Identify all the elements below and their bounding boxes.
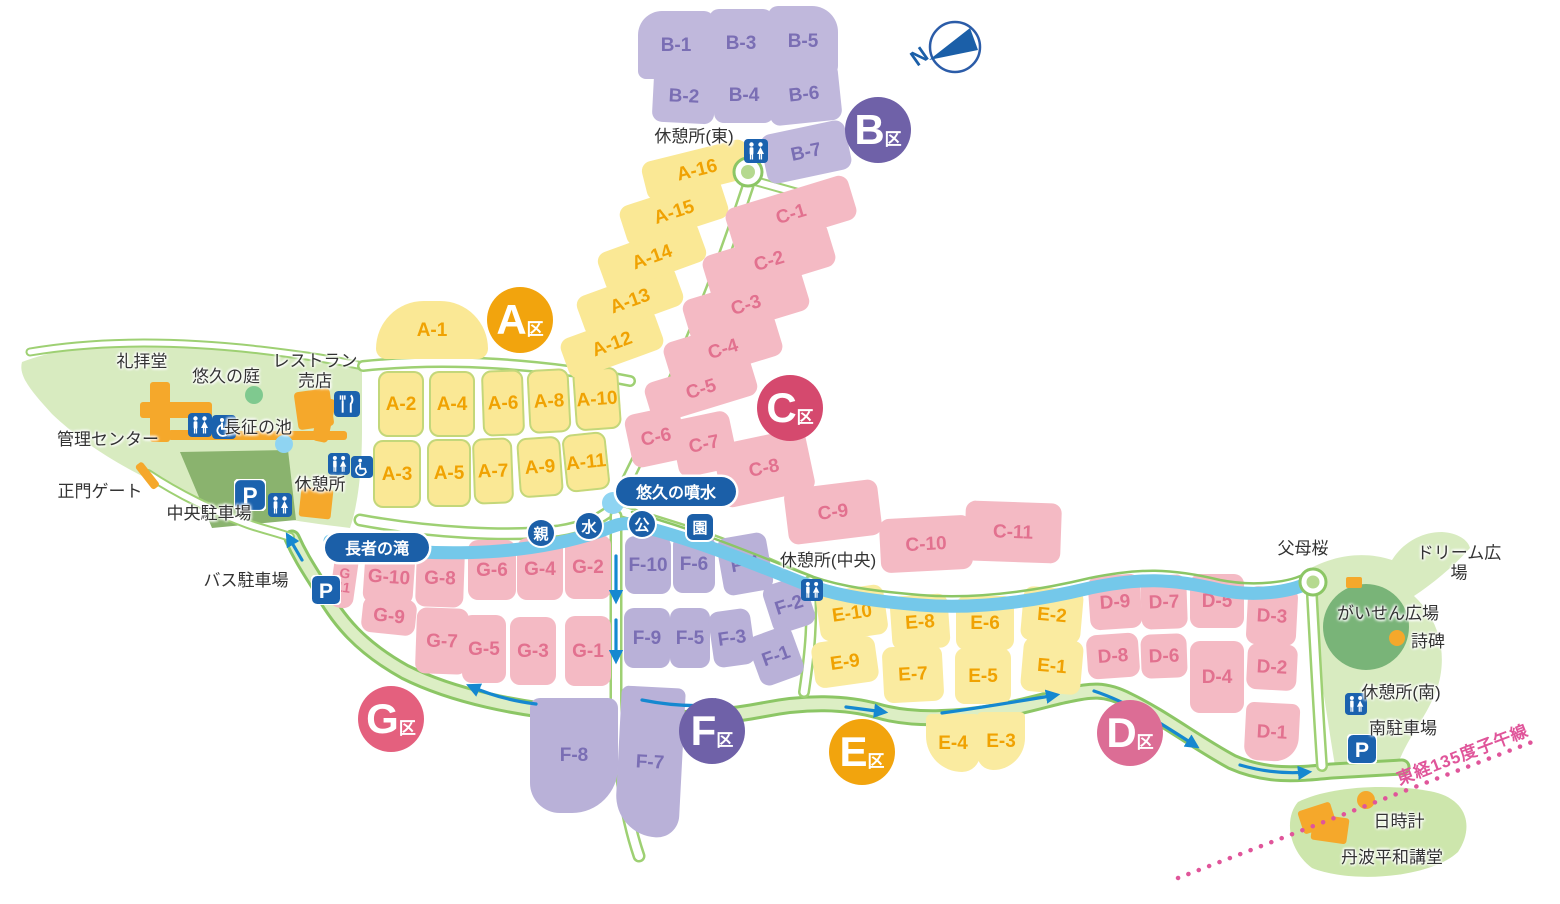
- plot-g-5: G-5: [462, 615, 506, 683]
- zone-badge-suffix: 区: [527, 315, 544, 340]
- plot-f-6: F-6: [673, 535, 715, 593]
- plot-e-7: E-7: [882, 644, 945, 703]
- park-char-園: 園: [687, 514, 713, 540]
- chosei-pond-label: 長征の池: [224, 418, 292, 438]
- plot-d-1: D-1: [1244, 702, 1301, 763]
- rest-area-label: 休憩所: [295, 475, 346, 495]
- zone-badge-letter: F: [691, 710, 717, 752]
- poem-monument-label: 詩碑: [1411, 632, 1445, 652]
- plot-c-11: C-11: [964, 500, 1062, 563]
- fubo-sakura-label: 父母桜: [1278, 539, 1329, 559]
- gaisen-square: [1346, 577, 1362, 588]
- plot-g-4: G-4: [517, 538, 563, 600]
- main-gate-label: 正門ゲート: [58, 482, 143, 502]
- plot-e-6: E-6: [956, 596, 1014, 650]
- plot-a-11: A-11: [561, 431, 611, 493]
- svg-text:P: P: [319, 579, 333, 603]
- plot-g-6: G-6: [468, 540, 516, 600]
- zone-badge-b: B区: [845, 97, 911, 163]
- svg-text:P: P: [1355, 738, 1369, 762]
- plot-d-2: D-2: [1246, 643, 1298, 692]
- zone-badge-suffix: 区: [868, 747, 885, 772]
- restaurant-shop-label: レストラン 売店: [273, 351, 358, 390]
- gaisen-plaza-circle: [1323, 584, 1409, 670]
- sundial-dot: [1357, 791, 1375, 809]
- plot-e-8: E-8: [889, 593, 951, 651]
- plot-f-3: F-3: [707, 607, 756, 668]
- plot-b-4: B-4: [714, 67, 774, 123]
- zone-badge-suffix: 区: [399, 714, 416, 739]
- plot-e-1: E-1: [1020, 636, 1084, 695]
- south-parking-label: 南駐車場: [1369, 719, 1437, 739]
- zone-badge-letter: A: [496, 299, 526, 341]
- plot-d-8: D-8: [1086, 632, 1141, 680]
- zone-badge-letter: E: [839, 731, 867, 773]
- plot-f-5: F-5: [670, 608, 710, 668]
- plot-d-4: D-4: [1190, 641, 1244, 713]
- choja-falls-label: 長者の滝: [325, 533, 429, 562]
- park-map: N 東経135度子午線 A-1A-2A-4A-6A-8A-10A-3A-5A-7…: [0, 0, 1560, 904]
- plot-b-2: B-2: [652, 67, 717, 124]
- yukyu-garden-label: 悠久の庭: [192, 367, 260, 387]
- plot-e-9: E-9: [810, 635, 880, 689]
- plot-c-9: C-9: [783, 478, 883, 545]
- plot-a-8: A-8: [526, 368, 571, 434]
- plot-a-9: A-9: [516, 436, 564, 499]
- zone-badge-e: E区: [829, 719, 895, 785]
- plot-d-6: D-6: [1140, 633, 1188, 679]
- plot-d-3: D-3: [1246, 586, 1299, 647]
- park-char-親: 親: [528, 520, 554, 546]
- poem-monument-dot: [1389, 630, 1405, 646]
- worship-hall-label: 礼拝堂: [117, 352, 168, 372]
- plot-d-7: D-7: [1140, 574, 1188, 630]
- bus-parking-label: バス駐車場: [204, 571, 289, 591]
- yukyu-fountain-label: 悠久の噴水: [616, 477, 736, 506]
- plot-g-9: G-9: [360, 595, 417, 636]
- zone-badge-f: F区: [679, 698, 745, 764]
- plot-d-5: D-5: [1190, 574, 1244, 628]
- plot-c-10: C-10: [879, 515, 974, 574]
- rest-area-south-label: 休憩所(南): [1361, 683, 1440, 703]
- gaisen-plaza-label: がいせん広場: [1337, 604, 1439, 624]
- zone-badge-g: G区: [358, 686, 424, 752]
- admin-center-label: 管理センター: [57, 430, 159, 450]
- zone-badge-letter: B: [854, 109, 884, 151]
- zone-badge-suffix: 区: [716, 726, 733, 751]
- zone-badge-d: D区: [1097, 700, 1163, 766]
- zone-badge-letter: D: [1106, 712, 1136, 754]
- plot-f-7: F-7: [614, 685, 686, 838]
- plot-a-4: A-4: [429, 371, 475, 437]
- plot-g-7: G-7: [415, 607, 469, 675]
- plot-d-9: D-9: [1087, 573, 1143, 630]
- zone-badge-letter: G: [366, 698, 399, 740]
- plot-b-6: B-6: [765, 61, 843, 126]
- zone-badge-a: A区: [487, 287, 553, 353]
- park-char-公: 公: [629, 511, 655, 537]
- plot-a-7: A-7: [472, 437, 514, 504]
- plot-f-10: F-10: [625, 536, 671, 594]
- yukyu-garden-dot: [245, 386, 263, 404]
- plot-g-3: G-3: [510, 617, 556, 685]
- sundial-label: 日時計: [1374, 812, 1425, 832]
- plot-g-2: G-2: [565, 535, 611, 599]
- park-char-水: 水: [576, 513, 602, 539]
- plot-e-5: E-5: [955, 648, 1011, 704]
- zone-badge-suffix: 区: [1137, 728, 1154, 753]
- zone-badge-suffix: 区: [797, 403, 814, 428]
- plot-e-10: E-10: [815, 584, 889, 643]
- rest-area-east-label: 休憩所(東): [654, 127, 733, 147]
- plot-a-5: A-5: [427, 439, 471, 507]
- dream-plaza-label: ドリーム広場: [1409, 543, 1510, 582]
- peace-hall-label: 丹波平和講堂: [1341, 848, 1443, 868]
- plot-a-3: A-3: [373, 440, 421, 508]
- zone-badge-c: C区: [757, 375, 823, 441]
- plot-a-2: A-2: [378, 371, 424, 437]
- zone-badge-letter: C: [766, 387, 796, 429]
- zone-badge-suffix: 区: [885, 125, 902, 150]
- plot-f-8: F-8: [530, 698, 618, 813]
- rest-area-central-label: 休憩所(中央): [780, 551, 876, 571]
- central-parking-label: 中央駐車場: [167, 504, 252, 524]
- plot-e-2: E-2: [1020, 585, 1084, 644]
- plot-a-6: A-6: [481, 369, 525, 436]
- plot-f-9: F-9: [624, 608, 670, 668]
- plot-g-1: G-1: [565, 616, 611, 686]
